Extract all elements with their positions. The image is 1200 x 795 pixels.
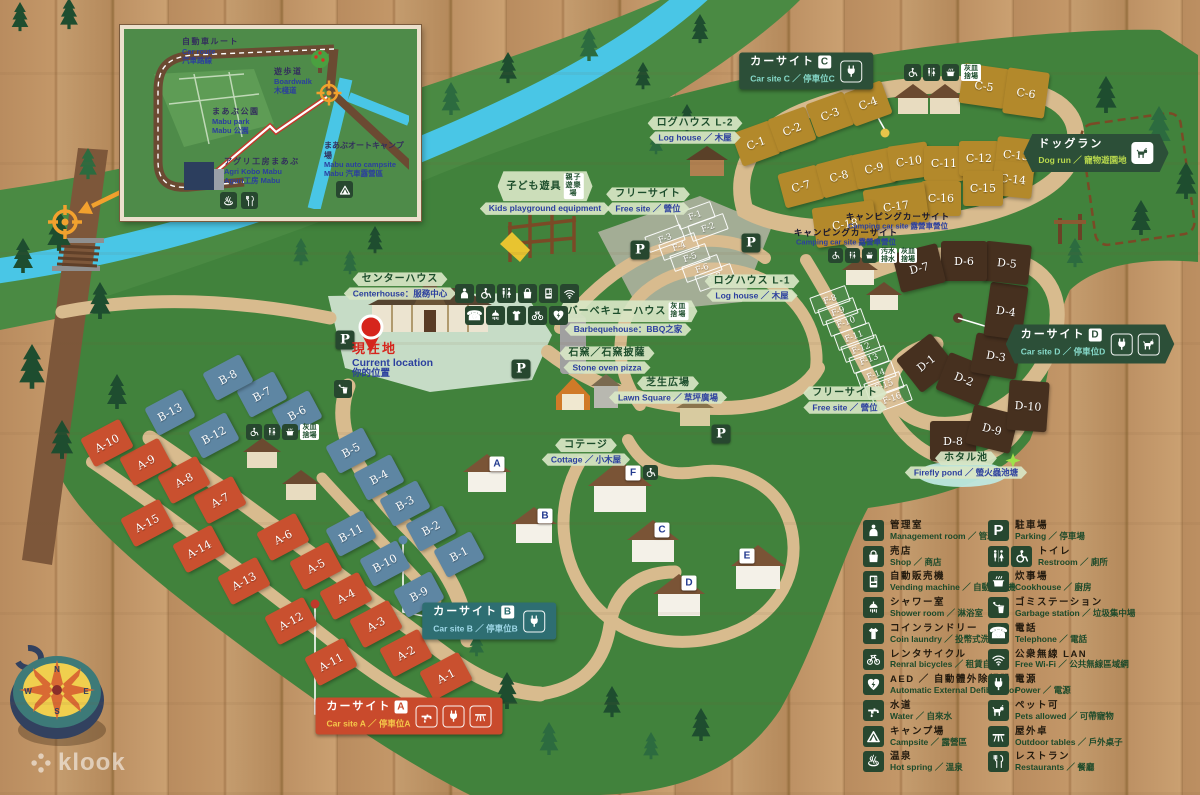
- campsite-icon: [336, 181, 353, 198]
- restaurants-icon: [241, 192, 258, 209]
- car-route-ja: 自動車ルート: [182, 37, 239, 47]
- boardwalk-ja: 遊歩道: [274, 67, 312, 77]
- campsite-map: N E S W: [0, 0, 1200, 795]
- inset-label-campsite: まあぶオートキャンプ場 Mabu auto campsite Mabu 汽車露營…: [324, 141, 409, 178]
- car-site-b-dot: [399, 536, 408, 545]
- campsite-ja: まあぶオートキャンプ場: [324, 141, 409, 160]
- car-site-c-dot: [881, 129, 890, 138]
- inset-map: 自動車ルート Car route 汽車路線 遊歩道 Boardwalk 木棧道 …: [120, 25, 421, 221]
- campsite-zh: Mabu 汽車露營區: [324, 169, 409, 178]
- campsite-en: Mabu auto campsite: [324, 160, 409, 169]
- hot-spring-icon: ♨: [220, 192, 237, 209]
- watermark: klook: [30, 749, 126, 777]
- klook-logo-icon: [30, 752, 52, 774]
- compass-s: S: [54, 707, 60, 716]
- boardwalk-zh: 木棧道: [274, 86, 312, 95]
- inset-label-mabu-park: まあぶ公園 Mabu park Mabu 公園: [212, 107, 260, 135]
- agri-kobo-ja: アグリ工房まあぶ: [224, 157, 300, 167]
- inset-label-car-route: 自動車ルート Car route 汽車路線: [182, 37, 239, 65]
- mabu-park-en: Mabu park: [212, 117, 260, 126]
- mabu-park-zh: Mabu 公園: [212, 126, 260, 135]
- agri-kobo-en: Agri Kobo Mabu: [224, 167, 300, 176]
- car-site-a-dot: [311, 600, 320, 609]
- inset-label-boardwalk: 遊歩道 Boardwalk 木棧道: [274, 67, 312, 95]
- boardwalk-en: Boardwalk: [274, 77, 312, 86]
- lawn-shed: [680, 408, 710, 426]
- agri-kobo-zh: Aguri工房 Mabu: [224, 176, 300, 185]
- car-route-en: Car route: [182, 47, 239, 56]
- compass-n: N: [54, 665, 60, 674]
- watermark-text: klook: [58, 749, 126, 777]
- compass-e: E: [83, 687, 89, 696]
- compass: N E S W: [10, 648, 106, 746]
- car-route-zh: 汽車路線: [182, 56, 239, 65]
- inset-label-agri-kobo: アグリ工房まあぶ Agri Kobo Mabu Aguri工房 Mabu: [224, 157, 300, 185]
- compass-w: W: [24, 687, 32, 696]
- mabu-park-ja: まあぶ公園: [212, 107, 260, 117]
